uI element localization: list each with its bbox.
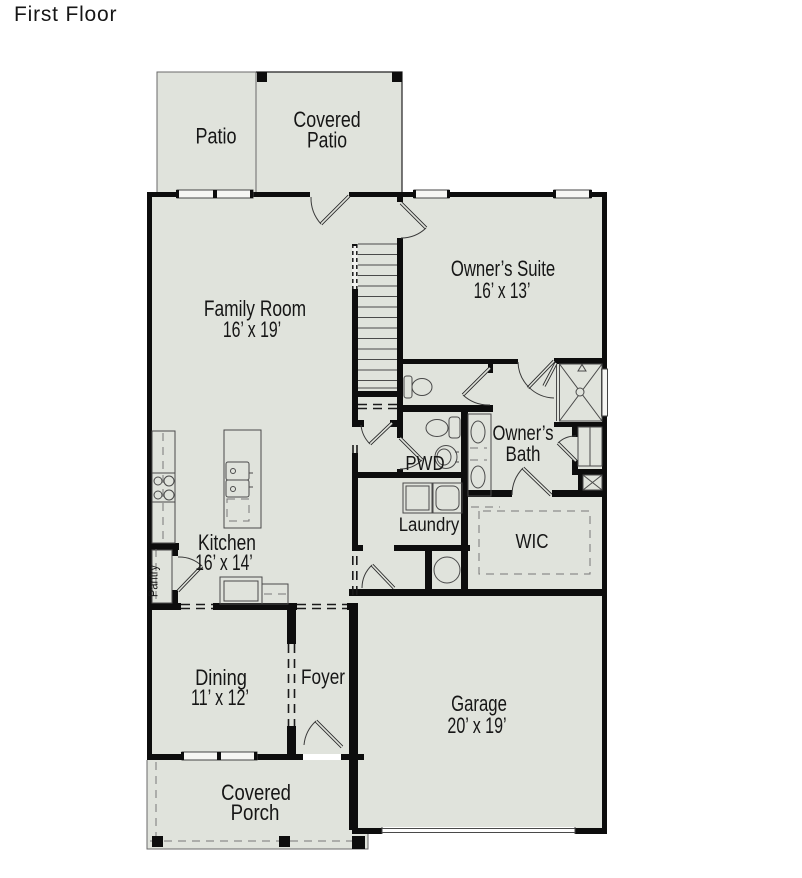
svg-text:20’ x 19’: 20’ x 19’ — [447, 715, 506, 739]
svg-text:16’ x 13’: 16’ x 13’ — [474, 279, 531, 303]
svg-text:Owner’s: Owner’s — [492, 422, 553, 445]
svg-text:16’ x 14’: 16’ x 14’ — [195, 552, 253, 576]
svg-text:16’ x 19’: 16’ x 19’ — [223, 319, 281, 343]
svg-text:11’ x 12’: 11’ x 12’ — [191, 687, 249, 711]
svg-text:Owner’s Suite: Owner’s Suite — [451, 257, 555, 282]
svg-text:Laundry: Laundry — [399, 514, 460, 535]
svg-text:First Floor: First Floor — [14, 3, 117, 26]
svg-text:Patio: Patio — [195, 125, 236, 149]
svg-text:Garage: Garage — [451, 692, 507, 717]
svg-text:Porch: Porch — [231, 802, 280, 826]
svg-text:Foyer: Foyer — [301, 667, 346, 690]
svg-text:Pantry: Pantry — [147, 564, 161, 597]
svg-text:PWD: PWD — [405, 451, 444, 474]
svg-text:WIC: WIC — [515, 530, 548, 553]
svg-text:Bath: Bath — [506, 443, 541, 466]
svg-text:Patio: Patio — [307, 129, 347, 153]
